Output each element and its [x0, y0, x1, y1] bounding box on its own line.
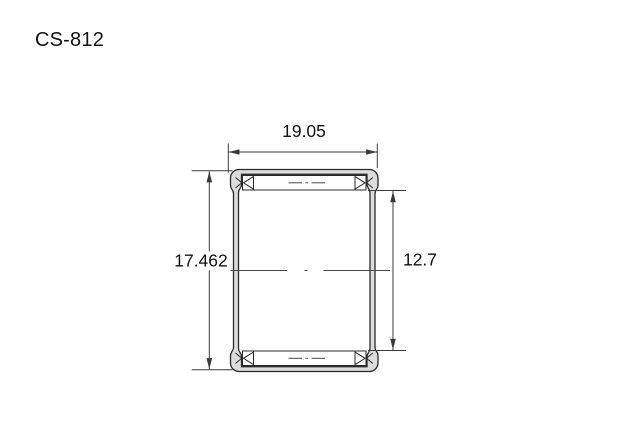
page: CS-812 [0, 0, 640, 440]
bearing-cross-section-drawing [0, 0, 640, 440]
bottom-roller-row [236, 351, 373, 366]
top-roller-row [236, 176, 373, 191]
dimension-outer-width [228, 144, 377, 173]
dimension-label-outer-width: 19.05 [282, 122, 326, 141]
dimension-label-outer-height: 17.462 [172, 251, 230, 270]
dimension-label-bore: 12.7 [403, 250, 437, 269]
